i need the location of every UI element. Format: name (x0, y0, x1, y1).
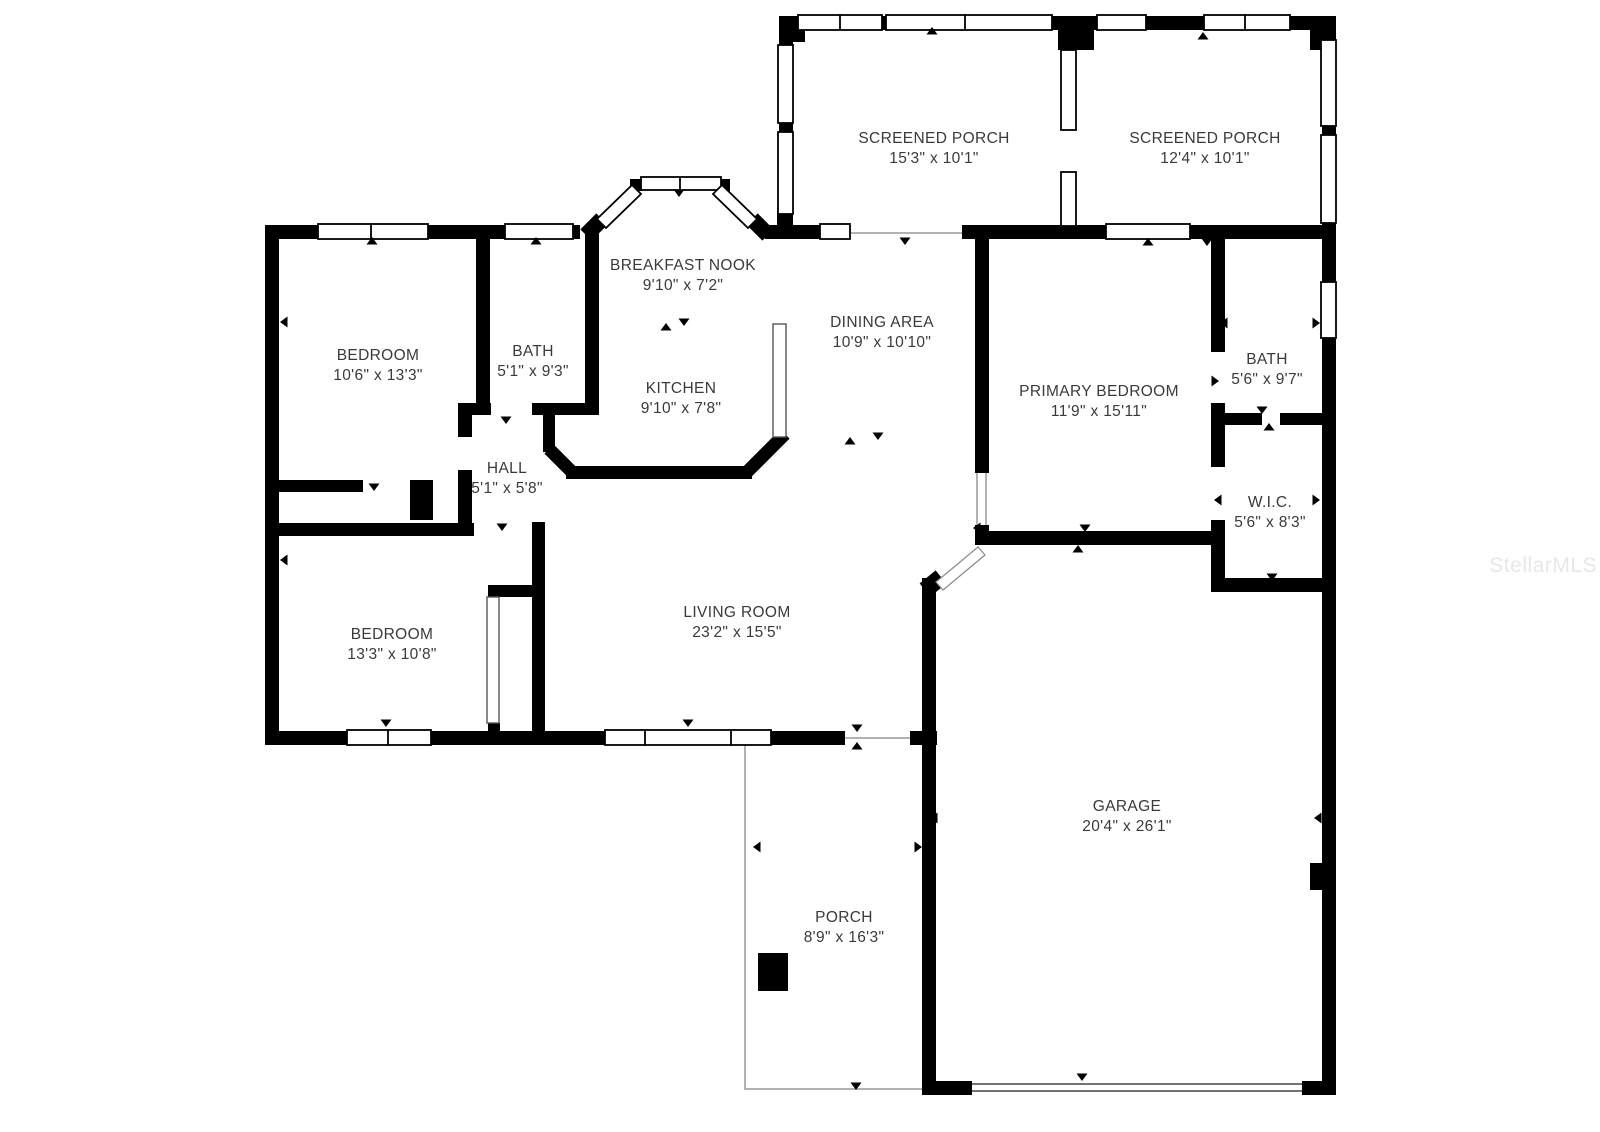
room-name: LIVING ROOM (683, 603, 790, 623)
room-name: SCREENED PORCH (1129, 129, 1280, 149)
room-dims: 20'4" x 26'1" (1082, 817, 1172, 837)
diagonal-door-leaf (936, 547, 985, 590)
bedroom-pocket-door (487, 597, 499, 723)
window (1204, 15, 1290, 30)
window (778, 45, 793, 123)
kitchen-counter (773, 324, 786, 437)
room-label-porch: PORCH 8'9" x 16'3" (804, 908, 885, 947)
garage-door (972, 1084, 1302, 1091)
window (820, 224, 850, 239)
room-name: KITCHEN (641, 379, 722, 399)
room-name: W.I.C. (1234, 493, 1306, 513)
room-dims: 13'3" x 10'8" (347, 645, 437, 665)
room-name: GARAGE (1082, 797, 1172, 817)
window (318, 224, 428, 239)
room-name: BEDROOM (333, 346, 423, 366)
window (1061, 50, 1076, 130)
room-label-breakfast-nook: BREAKFAST NOOK 9'10" x 7'2" (610, 256, 756, 295)
floor-plan-drawing (0, 0, 1600, 1132)
room-dims: 12'4" x 10'1" (1129, 149, 1280, 169)
fixtures (487, 324, 786, 723)
window (778, 132, 793, 214)
room-dims: 5'1" x 5'8" (471, 479, 543, 499)
room-dims: 10'6" x 13'3" (333, 366, 423, 386)
room-name: BATH (1231, 350, 1303, 370)
window (713, 185, 757, 228)
room-label-bath-left: BATH 5'1" x 9'3" (497, 342, 569, 381)
room-dims: 23'2" x 15'5" (683, 623, 790, 643)
window (605, 730, 771, 745)
window (347, 730, 431, 745)
room-name: BEDROOM (347, 625, 437, 645)
room-label-living-room: LIVING ROOM 23'2" x 15'5" (683, 603, 790, 642)
room-dims: 5'6" x 9'7" (1231, 370, 1303, 390)
room-label-screened-porch-right: SCREENED PORCH 12'4" x 10'1" (1129, 129, 1280, 168)
window (1097, 15, 1146, 30)
room-dims: 9'10" x 7'2" (610, 276, 756, 296)
room-label-bedroom-bottom-left: BEDROOM 13'3" x 10'8" (347, 625, 437, 664)
room-name: HALL (471, 459, 543, 479)
room-name: BATH (497, 342, 569, 362)
room-dims: 8'9" x 16'3" (804, 928, 885, 948)
window (641, 177, 721, 190)
window (505, 224, 573, 239)
room-label-dining-area: DINING AREA 10'9" x 10'10" (830, 313, 934, 352)
room-label-bath-right: BATH 5'6" x 9'7" (1231, 350, 1303, 389)
room-label-garage: GARAGE 20'4" x 26'1" (1082, 797, 1172, 836)
room-dims: 5'6" x 8'3" (1234, 513, 1306, 533)
room-label-bedroom-top-left: BEDROOM 10'6" x 13'3" (333, 346, 423, 385)
floor-plan: SCREENED PORCH 15'3" x 10'1" SCREENED PO… (0, 0, 1600, 1132)
room-dims: 11'9" x 15'11" (1019, 402, 1179, 422)
room-name: PRIMARY BEDROOM (1019, 382, 1179, 402)
walls (265, 16, 1336, 1095)
window (1106, 224, 1190, 239)
room-label-walk-in-closet: W.I.C. 5'6" x 8'3" (1234, 493, 1306, 532)
room-label-primary-bedroom: PRIMARY BEDROOM 11'9" x 15'11" (1019, 382, 1179, 421)
room-dims: 5'1" x 9'3" (497, 362, 569, 382)
window (1321, 282, 1336, 338)
window (1321, 135, 1336, 223)
window (1321, 40, 1336, 126)
watermark: StellarMLS (1489, 554, 1597, 578)
room-label-hall: HALL 5'1" x 5'8" (471, 459, 543, 498)
room-name: DINING AREA (830, 313, 934, 333)
room-label-kitchen: KITCHEN 9'10" x 7'8" (641, 379, 722, 418)
window (1061, 172, 1076, 226)
window (597, 185, 641, 228)
window (886, 15, 1052, 30)
room-dims: 15'3" x 10'1" (858, 149, 1009, 169)
room-name: PORCH (804, 908, 885, 928)
windows (318, 15, 1336, 745)
room-label-screened-porch-left: SCREENED PORCH 15'3" x 10'1" (858, 129, 1009, 168)
porch-post (758, 953, 788, 991)
room-name: BREAKFAST NOOK (610, 256, 756, 276)
room-dims: 9'10" x 7'8" (641, 399, 722, 419)
room-dims: 10'9" x 10'10" (830, 333, 934, 353)
door-markers (280, 27, 1322, 1090)
room-name: SCREENED PORCH (858, 129, 1009, 149)
